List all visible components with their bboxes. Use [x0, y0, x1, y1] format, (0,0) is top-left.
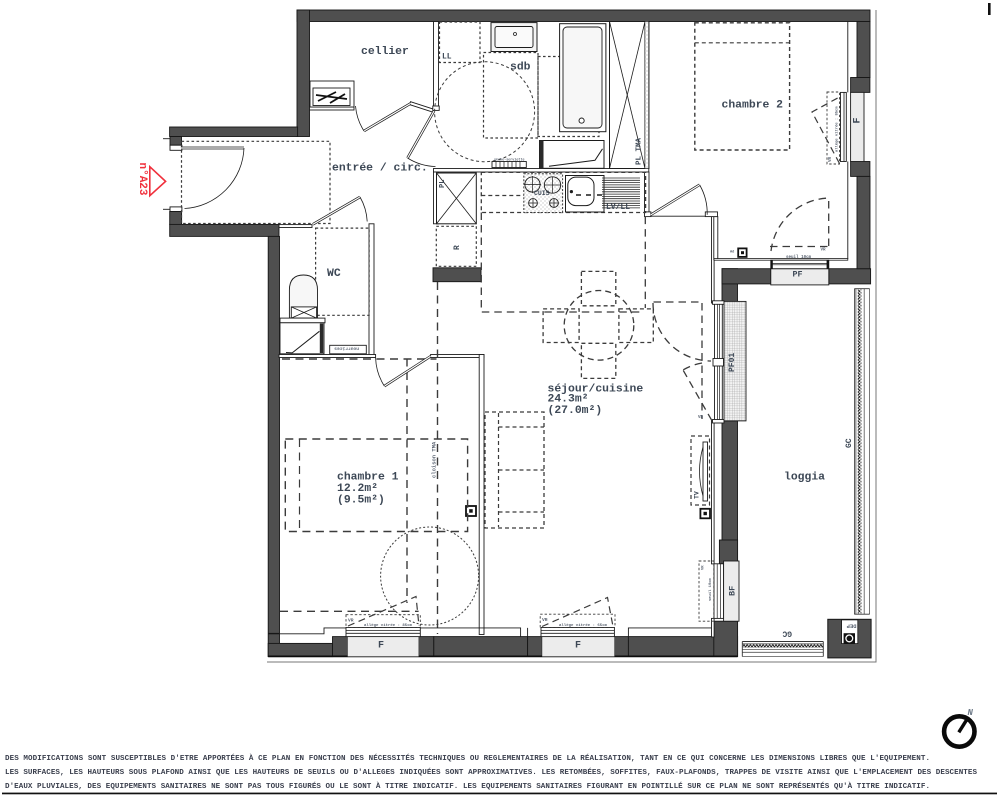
svg-text:F: F — [378, 641, 384, 652]
svg-text:Ad: Ad — [730, 250, 734, 255]
svg-text:WC: WC — [327, 268, 341, 280]
svg-text:DES MODIFICATIONS SONT SUSCEPT: DES MODIFICATIONS SONT SUSCEPTIBLES D'ET… — [5, 754, 930, 763]
svg-text:LV/LL: LV/LL — [606, 203, 630, 212]
svg-text:chambre 1: chambre 1 — [337, 472, 399, 484]
svg-text:sdb: sdb — [510, 62, 531, 74]
svg-text:(9.5m²): (9.5m²) — [337, 495, 385, 507]
svg-text:PL: PL — [439, 180, 447, 188]
svg-text:BF: BF — [728, 586, 738, 596]
svg-text:n°A23: n°A23 — [136, 163, 148, 196]
svg-text:allège vitrée : 85cm: allège vitrée : 85cm — [835, 106, 840, 152]
svg-text:CUIS: CUIS — [534, 190, 550, 197]
svg-text:VR: VR — [821, 249, 827, 253]
svg-text:12.2m²: 12.2m² — [337, 483, 378, 495]
svg-text:R: R — [453, 245, 462, 250]
svg-text:PL TMA: PL TMA — [636, 137, 644, 165]
svg-text:VR: VR — [348, 618, 354, 624]
svg-text:DEP: DEP — [846, 623, 857, 630]
svg-text:VR: VR — [542, 617, 548, 623]
svg-text:VR: VR — [698, 416, 704, 420]
svg-text:TV: TV — [694, 491, 701, 499]
svg-text:allège vitrée : 85cm: allège vitrée : 85cm — [364, 623, 413, 628]
svg-text:chambre 2: chambre 2 — [722, 100, 784, 112]
svg-text:sèche-serviette: sèche-serviette — [494, 158, 525, 163]
svg-text:F: F — [575, 641, 581, 652]
svg-text:GC: GC — [782, 629, 792, 638]
svg-text:PF01: PF01 — [728, 353, 737, 372]
svg-text:seuil 10cm: seuil 10cm — [786, 255, 812, 260]
svg-text:(27.0m²): (27.0m²) — [548, 405, 603, 417]
svg-text:allège vitrée : 65cm: allège vitrée : 65cm — [559, 623, 608, 628]
svg-text:PF: PF — [793, 270, 803, 280]
svg-text:entrée / circ.: entrée / circ. — [332, 163, 428, 175]
svg-text:LL: LL — [442, 53, 452, 62]
svg-text:VR: VR — [829, 156, 833, 162]
svg-text:D'EAUX PLUVIALES, DES EQUIPEME: D'EAUX PLUVIALES, DES EQUIPEMENTS SANITA… — [5, 782, 930, 791]
svg-text:GC: GC — [845, 438, 854, 448]
svg-text:loggia: loggia — [784, 472, 825, 484]
svg-text:cloison TMA: cloison TMA — [431, 441, 438, 478]
svg-text:F: F — [853, 117, 864, 123]
svg-text:VR: VR — [702, 565, 706, 570]
svg-text:cellier: cellier — [361, 46, 409, 58]
svg-text:LES SURFACES, LES HAUTEURS SOU: LES SURFACES, LES HAUTEURS SOUS PLAFOND … — [5, 768, 977, 777]
svg-text:seuil 10cm: seuil 10cm — [708, 577, 713, 601]
svg-text:24.3m²: 24.3m² — [548, 394, 589, 406]
svg-text:nourrices: nourrices — [334, 346, 359, 352]
svg-text:N: N — [968, 708, 974, 718]
